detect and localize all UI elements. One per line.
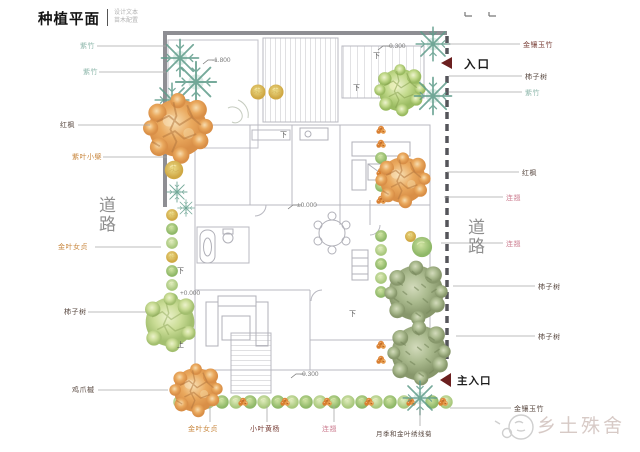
plant-label-jinxiangyuzhu-n: 金镶玉竹	[523, 40, 553, 50]
title-subtext: 设计文本 苗木配置	[114, 8, 138, 25]
level-text: ±0.000	[297, 202, 317, 209]
plant-label-xiaoyehuangyang: 小叶黄杨	[250, 424, 280, 434]
title-block: 种植平面 设计文本 苗木配置	[38, 8, 138, 29]
stair-upper	[263, 38, 338, 122]
plant-label-shizishu-w: 柿子树	[64, 307, 87, 317]
plant-label-lianqiao-1: 连翘	[506, 193, 521, 203]
road-label-west: 道路	[99, 196, 117, 234]
main-entry-arrow-icon	[440, 373, 451, 387]
plant-label-hongfeng-e: 红枫	[522, 168, 537, 178]
plant-label-shizishu-ne: 柿子树	[525, 72, 548, 82]
plant-label-shizishu-e1: 柿子树	[538, 282, 561, 292]
plant-label-ziyexiaobo: 紫叶小檗	[72, 152, 102, 162]
stair-lower	[231, 333, 271, 393]
plant-label-zizhu-1: 紫竹	[80, 41, 95, 51]
planting-plan-sheet: -1.800 -0.300 ±0.000 +0.000 -0.300 下 下 下…	[0, 0, 640, 452]
bamboo-northwest	[162, 40, 199, 77]
persimmon-east-1	[384, 261, 447, 326]
red-maple-west	[143, 93, 213, 164]
level-text: -0.300	[300, 371, 319, 378]
entry-arrow-icon	[441, 57, 452, 69]
entrance-label-side: 入口	[464, 56, 491, 72]
page-title: 种植平面	[38, 8, 100, 29]
stair-down-mark: 下	[280, 131, 287, 139]
plant-label-lianqiao-2: 连翘	[506, 239, 521, 249]
level-text: -1.800	[212, 57, 231, 64]
plant-label-hongfeng: 红枫	[60, 120, 75, 130]
plant-label-jizhuaqi: 鸡爪槭	[72, 385, 95, 395]
corner-tick-marks	[465, 12, 496, 16]
barberry-ball	[165, 161, 183, 179]
road-label-east: 道路	[468, 218, 486, 256]
plant-label-shizishu-e2: 柿子树	[538, 332, 561, 342]
bamboo-east-1	[416, 27, 450, 61]
topiary-ball	[250, 84, 265, 99]
plant-label-zizhu-e: 紫竹	[525, 88, 540, 98]
persimmon-east-2	[387, 321, 450, 386]
hedge-row-west	[166, 182, 194, 305]
plant-label-jinyenvzhen: 金叶女贞	[58, 242, 88, 252]
plant-label-lianqiao-s: 连翘	[322, 424, 337, 434]
entrance-label-main: 主入口	[457, 373, 492, 388]
plant-label-yueji-mix: 月季和金叶绣线菊	[376, 428, 432, 438]
bamboo-east-2	[415, 78, 452, 115]
watermark-brand: 乡土殊舍	[537, 411, 625, 438]
stair-down-mark: 下	[177, 267, 184, 275]
acer-southwest	[169, 363, 222, 417]
level-text: +0.000	[180, 290, 200, 297]
watermark-sketch-icon	[495, 415, 533, 439]
title-divider	[107, 9, 108, 26]
stair-down-mark: 下	[373, 52, 380, 60]
topiary-ball	[268, 84, 283, 99]
grass-sketch	[228, 100, 248, 123]
persimmon-west	[145, 293, 196, 353]
plant-label-zizhu-2: 紫竹	[83, 67, 98, 77]
level-text: -0.300	[387, 43, 406, 50]
stair-down-mark: 下	[353, 84, 360, 92]
stair-down-mark: 下	[349, 310, 356, 318]
stair-up-mark: 上	[177, 340, 184, 349]
plant-label-jinyenvzhen-s: 金叶女贞	[188, 424, 218, 434]
